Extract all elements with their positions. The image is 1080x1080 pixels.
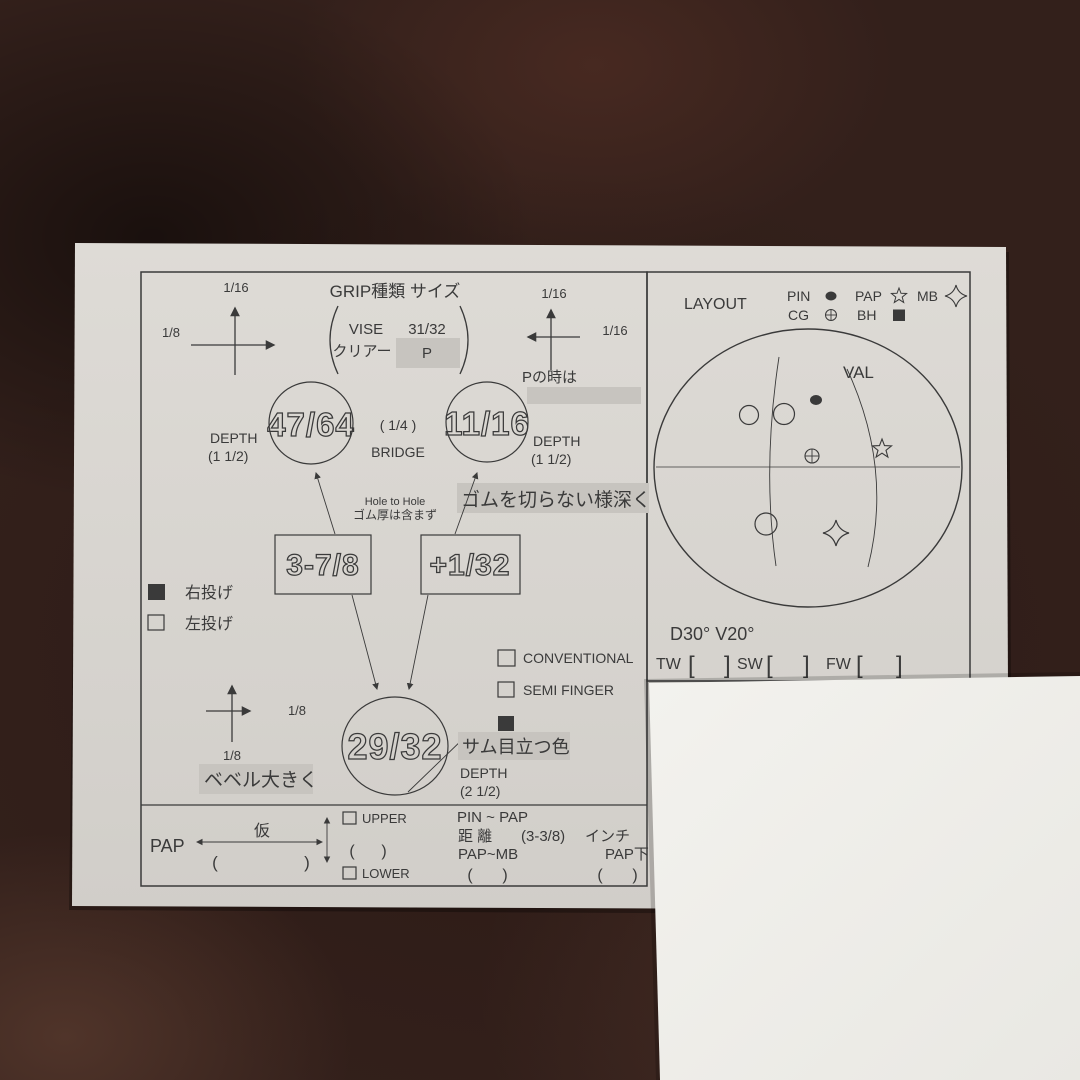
bevel-note: ベベル大きく bbox=[204, 769, 318, 791]
hand-option-right: 右投げ bbox=[148, 584, 233, 602]
hole-size: 29/32 bbox=[347, 726, 442, 767]
depth-label: DEPTH bbox=[533, 433, 580, 449]
blank-paper bbox=[649, 676, 1080, 1080]
depth-label: DEPTH bbox=[460, 765, 507, 781]
hand-label: 左投げ bbox=[185, 615, 233, 633]
pin-dot-icon bbox=[826, 292, 837, 301]
photo-scene: 1/16 1/8 GRIP種類 サイズ VISE 31/32 クリアー P 1/… bbox=[0, 0, 1080, 1080]
grip-title: GRIP種類 サイズ bbox=[330, 282, 461, 301]
rubber-thickness-note: ゴム厚は含まず bbox=[353, 507, 437, 522]
grip-brand: VISE bbox=[349, 321, 383, 338]
paren-open: ( bbox=[349, 843, 355, 860]
sw-label: SW bbox=[737, 656, 764, 673]
depth-value: (1 1/2) bbox=[531, 451, 571, 467]
val-label: VAL bbox=[843, 363, 874, 382]
span-value: +1/32 bbox=[430, 549, 511, 582]
upper-label: UPPER bbox=[362, 811, 407, 826]
lower-label: LOWER bbox=[362, 866, 410, 881]
bracket: [ bbox=[688, 652, 695, 679]
hole-size: 47/64 bbox=[267, 406, 355, 443]
paren-close: ) bbox=[632, 867, 637, 884]
style-label: CONVENTIONAL bbox=[523, 650, 634, 666]
paren-open: ( bbox=[212, 853, 218, 872]
pap-label: PAP bbox=[150, 836, 185, 856]
legend-cg-label: CG bbox=[788, 307, 809, 323]
distance-label: 距 離 bbox=[458, 827, 492, 845]
paren-open: ( bbox=[597, 867, 603, 884]
bridge-label: BRIDGE bbox=[371, 444, 425, 460]
thumb-color-checkbox-checked bbox=[498, 716, 514, 731]
rubber-note: ゴムを切らない様深く bbox=[461, 489, 651, 511]
checkbox-checked bbox=[148, 584, 165, 600]
paren-open: ( bbox=[467, 867, 473, 884]
style-label: SEMI FINGER bbox=[523, 682, 614, 698]
legend-bh-label: BH bbox=[857, 307, 876, 323]
temp-label: 仮 bbox=[254, 822, 270, 840]
tw-label: TW bbox=[656, 656, 682, 673]
hole-size: 11/16 bbox=[444, 405, 530, 442]
distance-value: (3-3/8) bbox=[521, 828, 565, 845]
drill-angles: D30° V20° bbox=[670, 624, 754, 644]
grip-clear-value: P bbox=[422, 345, 432, 362]
bridge-value: ( 1/4 ) bbox=[380, 417, 417, 433]
paren-close: ) bbox=[304, 853, 310, 872]
fraction-label: 1/16 bbox=[541, 286, 566, 301]
grip-size: 31/32 bbox=[408, 321, 446, 338]
pap-mb-label: PAP~MB bbox=[458, 846, 518, 863]
bracket: ] bbox=[803, 652, 810, 679]
paren-close: ) bbox=[381, 843, 386, 860]
depth-value: (2 1/2) bbox=[460, 783, 500, 799]
fw-label: FW bbox=[826, 656, 852, 673]
legend-pin-label: PIN bbox=[787, 288, 810, 304]
pap-below-label: PAP下 bbox=[605, 846, 649, 863]
fraction-label: 1/8 bbox=[288, 703, 306, 718]
p-note: Pの時は bbox=[522, 369, 577, 386]
distance-unit: インチ bbox=[585, 828, 630, 845]
fraction-label: 1/16 bbox=[223, 280, 248, 295]
bracket: [ bbox=[766, 652, 773, 679]
bracket: ] bbox=[724, 652, 731, 679]
depth-value: (1 1/2) bbox=[208, 448, 248, 464]
pin-to-pap-label: PIN ~ PAP bbox=[457, 809, 528, 826]
hole-to-hole-note: Hole to Hole bbox=[365, 496, 426, 508]
legend-mb-label: MB bbox=[917, 288, 938, 304]
legend-pap-label: PAP bbox=[855, 288, 882, 304]
paren-close: ) bbox=[502, 867, 507, 884]
fraction-label: 1/8 bbox=[162, 325, 180, 340]
bracket: [ bbox=[856, 652, 863, 679]
fraction-label: 1/16 bbox=[602, 323, 627, 338]
thumb-color-note: サム目立つ色 bbox=[462, 737, 570, 757]
cg-circle-plus-icon bbox=[826, 310, 837, 321]
depth-label: DEPTH bbox=[210, 430, 257, 446]
span-value: 3-7/8 bbox=[286, 549, 359, 582]
bh-square-icon bbox=[893, 310, 905, 322]
hand-label: 右投げ bbox=[185, 584, 233, 602]
grip-clear-label: クリアー bbox=[332, 343, 391, 360]
fraction-label: 1/8 bbox=[223, 748, 241, 763]
layout-title: LAYOUT bbox=[684, 296, 747, 313]
p-note-highlight bbox=[527, 387, 641, 404]
pin-mark bbox=[810, 395, 822, 405]
cg-mark bbox=[805, 449, 819, 463]
